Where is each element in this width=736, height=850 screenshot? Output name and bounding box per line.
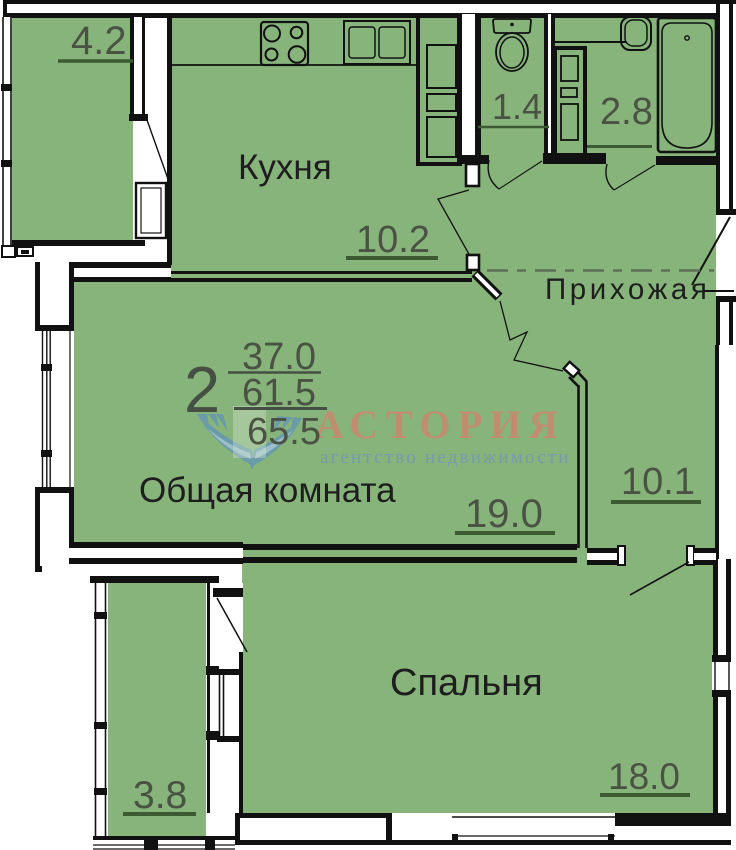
svg-text:2.8: 2.8 <box>600 91 653 133</box>
svg-text:4.2: 4.2 <box>71 19 127 63</box>
svg-text:Общая комната: Общая комната <box>139 471 396 510</box>
svg-text:10.2: 10.2 <box>356 219 430 261</box>
svg-text:Кухня: Кухня <box>238 148 332 187</box>
svg-text:АСТОРИЯ: АСТОРИЯ <box>315 402 565 447</box>
svg-text:2: 2 <box>184 353 220 426</box>
svg-text:Спальня: Спальня <box>390 662 543 704</box>
svg-text:3.8: 3.8 <box>133 774 187 817</box>
svg-text:65.5: 65.5 <box>247 411 321 453</box>
svg-text:агентство недвижимости: агентство недвижимости <box>320 447 571 468</box>
svg-text:1.4: 1.4 <box>492 86 542 127</box>
svg-text:19.0: 19.0 <box>465 492 543 536</box>
svg-text:10.1: 10.1 <box>621 461 695 503</box>
svg-text:Прихожая: Прихожая <box>545 273 711 306</box>
svg-text:18.0: 18.0 <box>608 756 680 797</box>
